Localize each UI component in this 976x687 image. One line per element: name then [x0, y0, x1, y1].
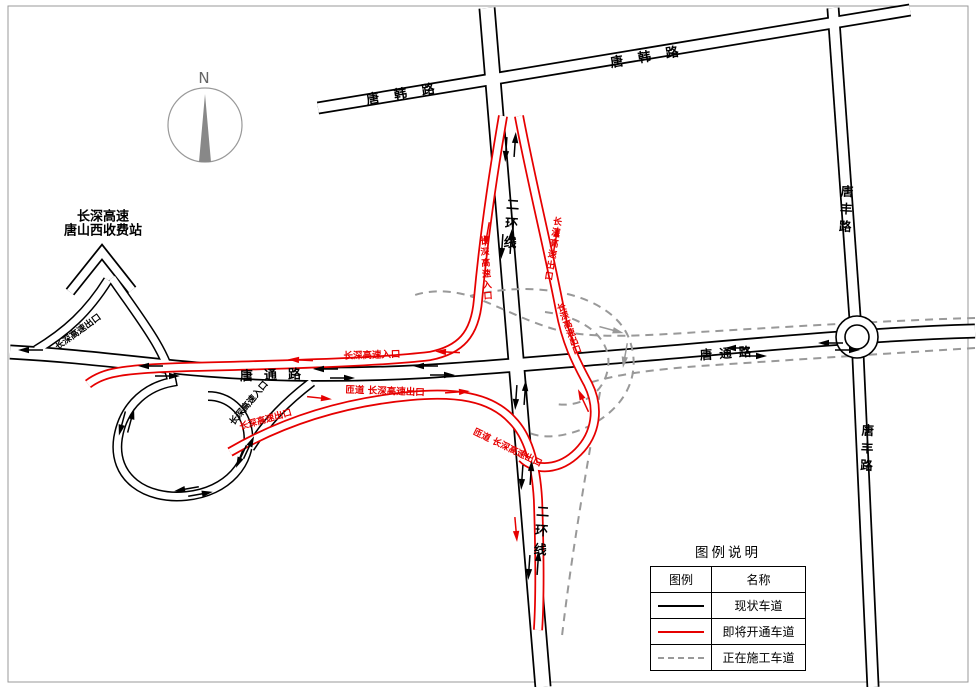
roundabout [836, 316, 878, 358]
toll-station-line1: 长深高速 [64, 210, 142, 224]
legend-symbol-construction [651, 645, 712, 671]
compass-needle [199, 94, 211, 162]
road-map: N 长深高速 唐山西收费站 唐韩路 唐韩路 唐通路 唐通路 二环线 二环线 唐丰… [0, 0, 976, 687]
legend-row-construction: 正在施工车道 [651, 645, 806, 671]
legend-name-construction: 正在施工车道 [712, 645, 806, 671]
legend-table: 图例 名称 现状车道 即将开通车道 正在施工车道 [650, 566, 806, 671]
toll-station-label: 长深高速 唐山西收费站 [64, 210, 142, 237]
legend-symbol-new [651, 619, 712, 645]
map-drawing [0, 0, 976, 687]
label-expressway-entrance-lane: 长深高速入口 [343, 350, 400, 362]
new-lane-line [658, 631, 704, 633]
legend-name-existing: 现状车道 [712, 593, 806, 619]
label-tangtong-road-right: 唐通路 [699, 344, 758, 361]
legend-symbol-existing [651, 593, 712, 619]
legend: 图例说明 图例 名称 现状车道 即将开通车道 正在施工车道 [650, 541, 806, 671]
legend-col-name: 名称 [712, 567, 806, 593]
legend-col-symbol: 图例 [651, 567, 712, 593]
north-compass [168, 88, 242, 162]
label-tangtong-road-left: 唐通路 [240, 368, 312, 384]
label-tangfeng-road-top: 唐丰路 [837, 184, 853, 237]
legend-name-new: 即将开通车道 [712, 619, 806, 645]
legend-row-new: 即将开通车道 [651, 619, 806, 645]
legend-header-row: 图例 名称 [651, 567, 806, 593]
label-erhuan-line-bottom: 二环线 [530, 504, 548, 562]
label-erhuan-line-top: 二环线 [500, 197, 518, 255]
existing-roads-core [10, 8, 975, 687]
label-tangfeng-road-bottom: 唐丰路 [859, 424, 874, 477]
legend-title: 图例说明 [650, 541, 806, 561]
legend-row-existing: 现状车道 [651, 593, 806, 619]
toll-station-line2: 唐山西收费站 [64, 224, 142, 238]
compass-north-label: N [198, 71, 209, 87]
existing-lane-line [658, 605, 704, 607]
construction-lane-line [658, 657, 704, 659]
